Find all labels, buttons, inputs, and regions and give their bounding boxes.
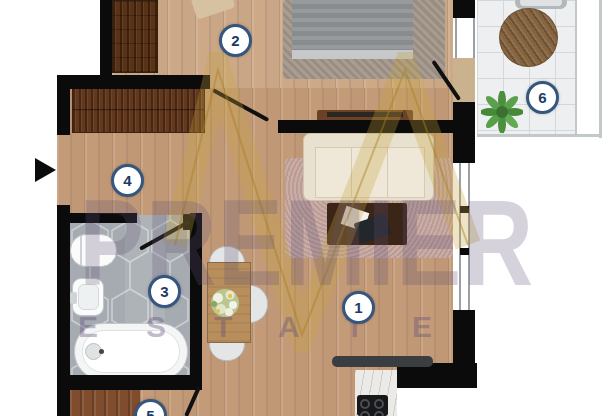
outside-mask <box>397 388 477 416</box>
wall <box>100 0 112 78</box>
room-number: 2 <box>231 32 239 49</box>
balcony-inner-rail <box>575 0 577 136</box>
room-number: 6 <box>538 89 546 106</box>
wall <box>57 213 137 223</box>
bathtub-faucet <box>99 349 104 354</box>
bed-sheet-edge <box>292 50 413 59</box>
room-number: 4 <box>123 172 131 189</box>
tv-bedroom <box>327 112 403 117</box>
tv-console-living <box>332 356 433 367</box>
room-number: 3 <box>160 283 168 300</box>
cooktop-burner <box>360 399 370 409</box>
wall <box>453 102 475 164</box>
window-latch <box>460 248 469 255</box>
wall <box>278 120 453 133</box>
balcony-bottom-rail <box>477 134 602 137</box>
living-window-line <box>468 163 470 310</box>
kitchen-floor-strip <box>70 390 140 416</box>
floor-plan: PREMIER ESTATE 1 2 3 4 5 6 <box>0 0 614 416</box>
wall <box>57 75 70 135</box>
living-window <box>453 163 475 310</box>
sofa-cushion <box>351 147 389 198</box>
toilet-tank-line <box>80 236 82 265</box>
flower-centerpiece <box>206 284 244 322</box>
room-label-hallway: 4 <box>111 164 144 197</box>
room-label-balcony: 6 <box>526 81 559 114</box>
sink-basin <box>78 284 99 310</box>
wall <box>190 213 202 390</box>
wardrobe <box>112 0 158 73</box>
room-label-bedroom: 2 <box>219 24 252 57</box>
balcony-outer-rail <box>599 0 602 138</box>
soap-dish <box>70 292 77 304</box>
room-label-living: 1 <box>342 291 375 324</box>
wall <box>453 0 475 18</box>
room-label-bathroom: 3 <box>148 275 181 308</box>
hallway-dresser <box>72 86 205 133</box>
sofa-cushion <box>387 147 425 198</box>
room-number: 1 <box>354 299 362 316</box>
sofa-cushion <box>315 147 353 198</box>
cooktop-burner <box>374 411 384 416</box>
balcony-door-frame <box>455 18 475 58</box>
window-latch <box>460 206 469 213</box>
balcony-table <box>500 9 557 66</box>
living-window-line <box>459 163 461 310</box>
cooktop-burner <box>374 399 384 409</box>
entrance-arrow-icon <box>35 158 56 182</box>
balcony-plant <box>481 91 523 133</box>
sofa <box>303 133 434 201</box>
room-number: 5 <box>146 407 154 416</box>
toilet <box>70 234 117 267</box>
wall <box>57 375 202 390</box>
cooktop-burner <box>360 411 370 416</box>
wall <box>57 75 210 89</box>
balcony-bench-inner <box>520 0 562 6</box>
